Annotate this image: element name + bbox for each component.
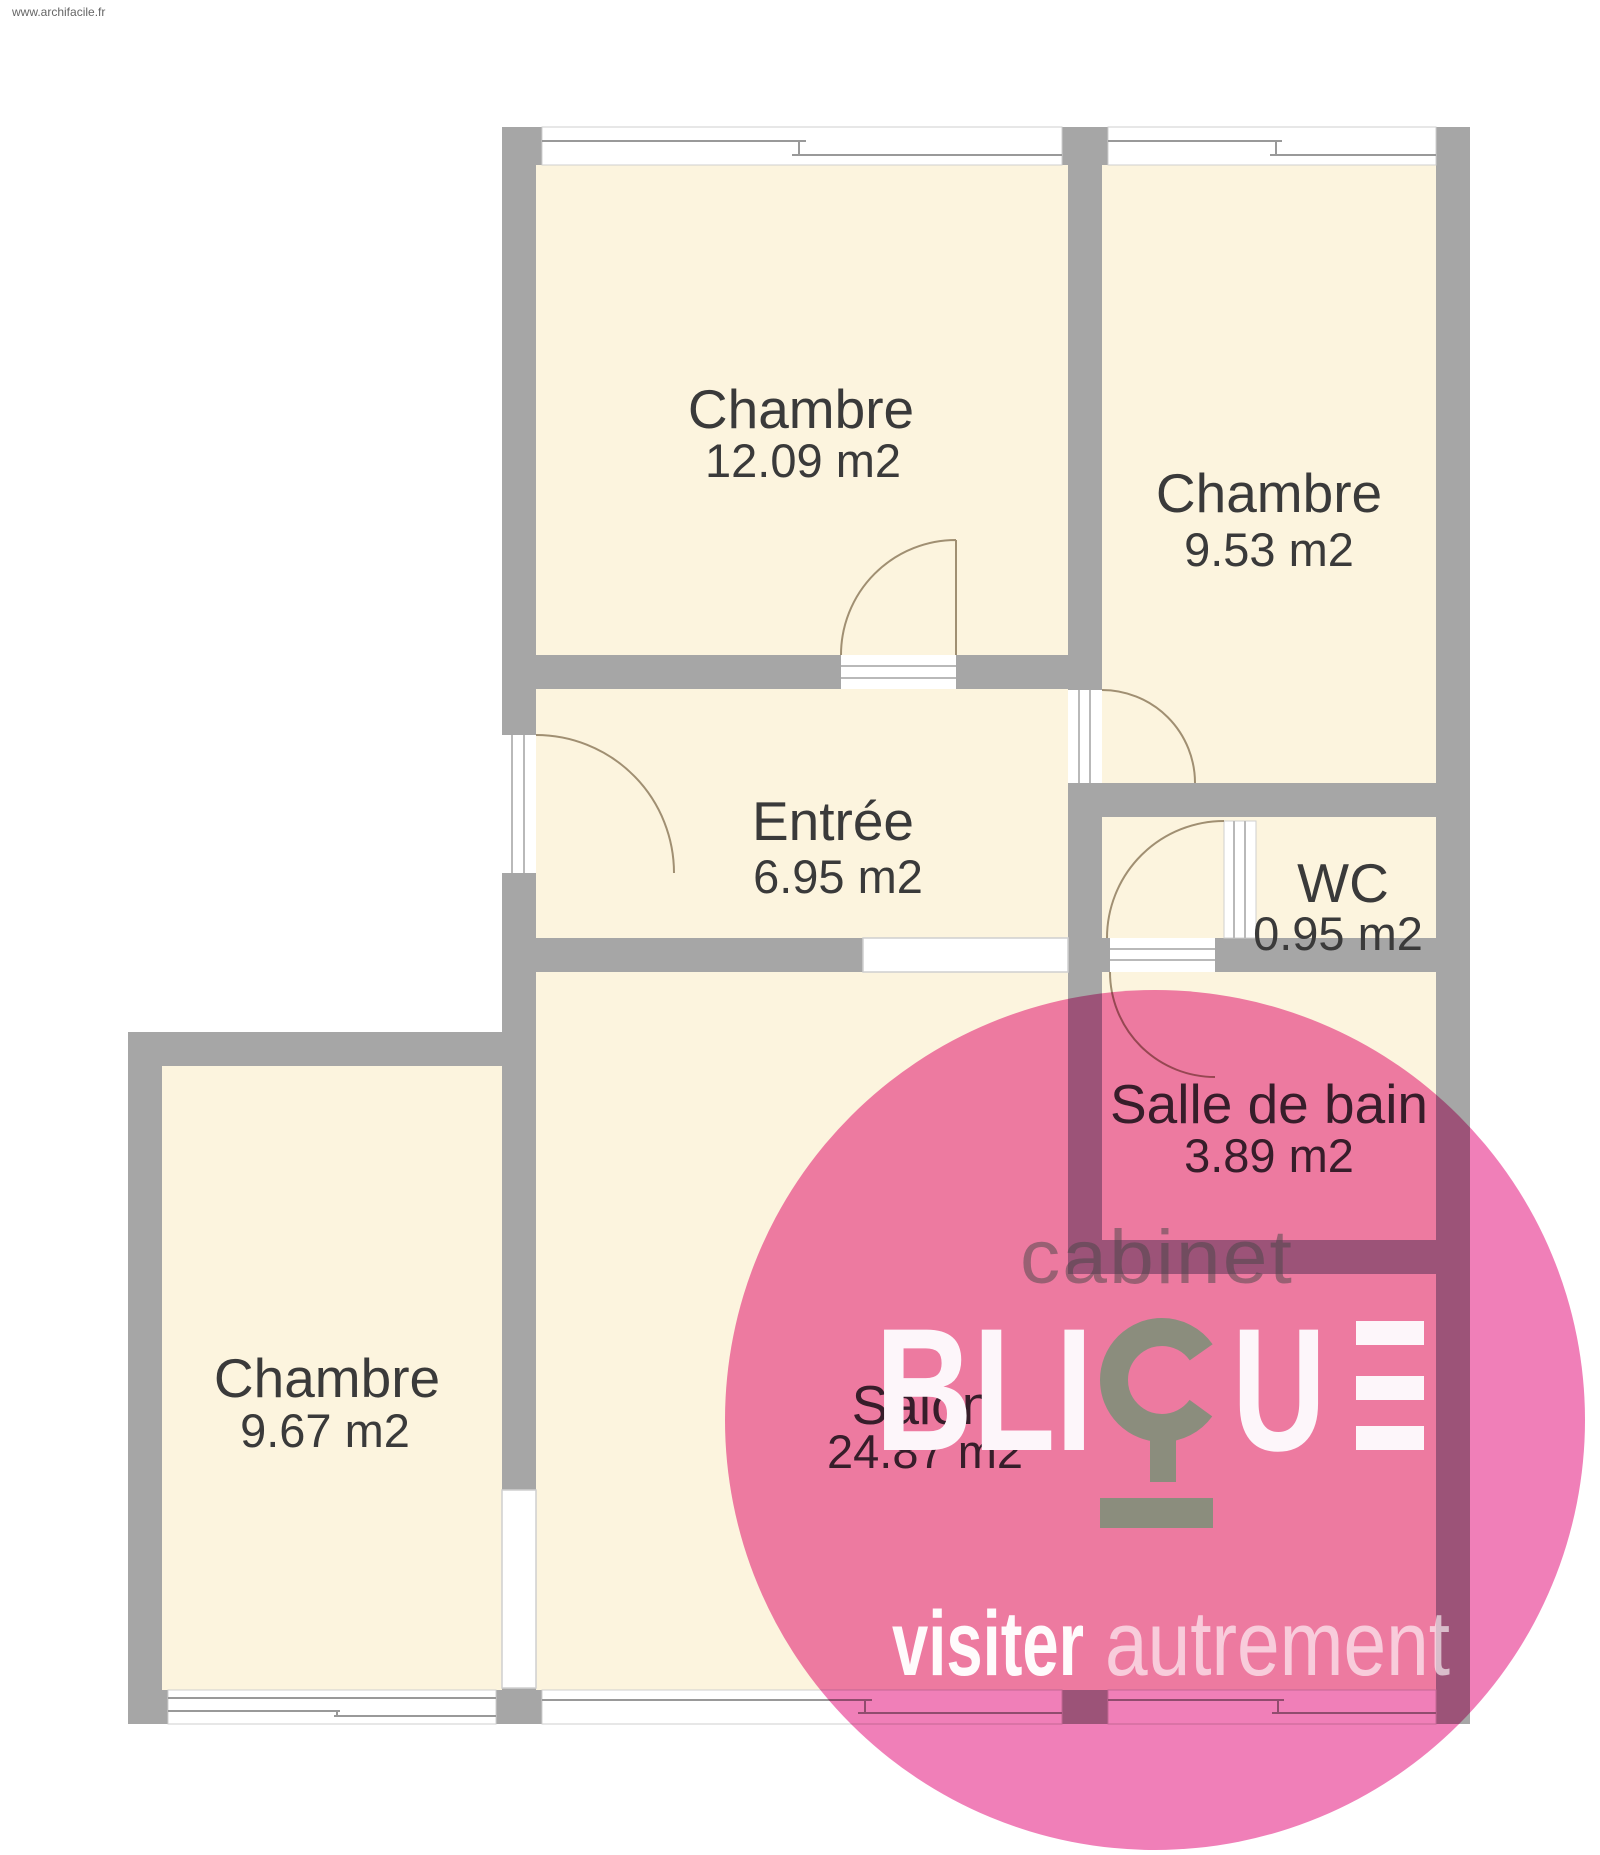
window-chambre1-top — [542, 127, 1062, 165]
label-chambre1-area: 12.09 m2 — [705, 434, 901, 487]
passage-chambre3 — [502, 1490, 536, 1688]
wall-chambre3-left — [128, 1032, 162, 1724]
logo-brand-bli: BLI — [875, 1293, 1093, 1488]
window-chambre2-top — [1108, 127, 1436, 165]
logo-brand-e-icon — [1356, 1321, 1424, 1450]
label-chambre2-area: 9.53 m2 — [1184, 523, 1354, 576]
label-wc-name: WC — [1297, 852, 1389, 914]
logo-cabinet-text: cabinet — [1020, 1215, 1294, 1300]
window-chambre3-bottom — [168, 1690, 496, 1724]
label-chambre3-area: 9.67 m2 — [240, 1404, 410, 1457]
label-wc-area: 0.95 m2 — [1253, 907, 1423, 960]
label-chambre2-name: Chambre — [1156, 462, 1382, 524]
label-chambre1-name: Chambre — [688, 378, 914, 440]
wall-chambre3-top — [128, 1032, 536, 1066]
logo-tagline-autrement: autrement — [1105, 1593, 1450, 1695]
floor-plan: www.archifacile.fr — [0, 0, 1600, 1855]
source-url-text: www.archifacile.fr — [11, 5, 105, 19]
wall-chambre1-bottom — [502, 655, 1102, 689]
label-entree-area: 6.95 m2 — [753, 850, 923, 903]
wall-chambre2-bottom — [1068, 783, 1470, 817]
passage-entree-salon — [863, 938, 1068, 972]
logo-q-underline-bar — [1100, 1498, 1213, 1528]
logo-tagline-visiter: visiter — [892, 1593, 1084, 1695]
label-chambre3-name: Chambre — [214, 1347, 440, 1409]
label-entree-name: Entrée — [752, 790, 914, 852]
logo-brand-u: U — [1232, 1293, 1326, 1488]
wall-left-main — [502, 127, 536, 1724]
